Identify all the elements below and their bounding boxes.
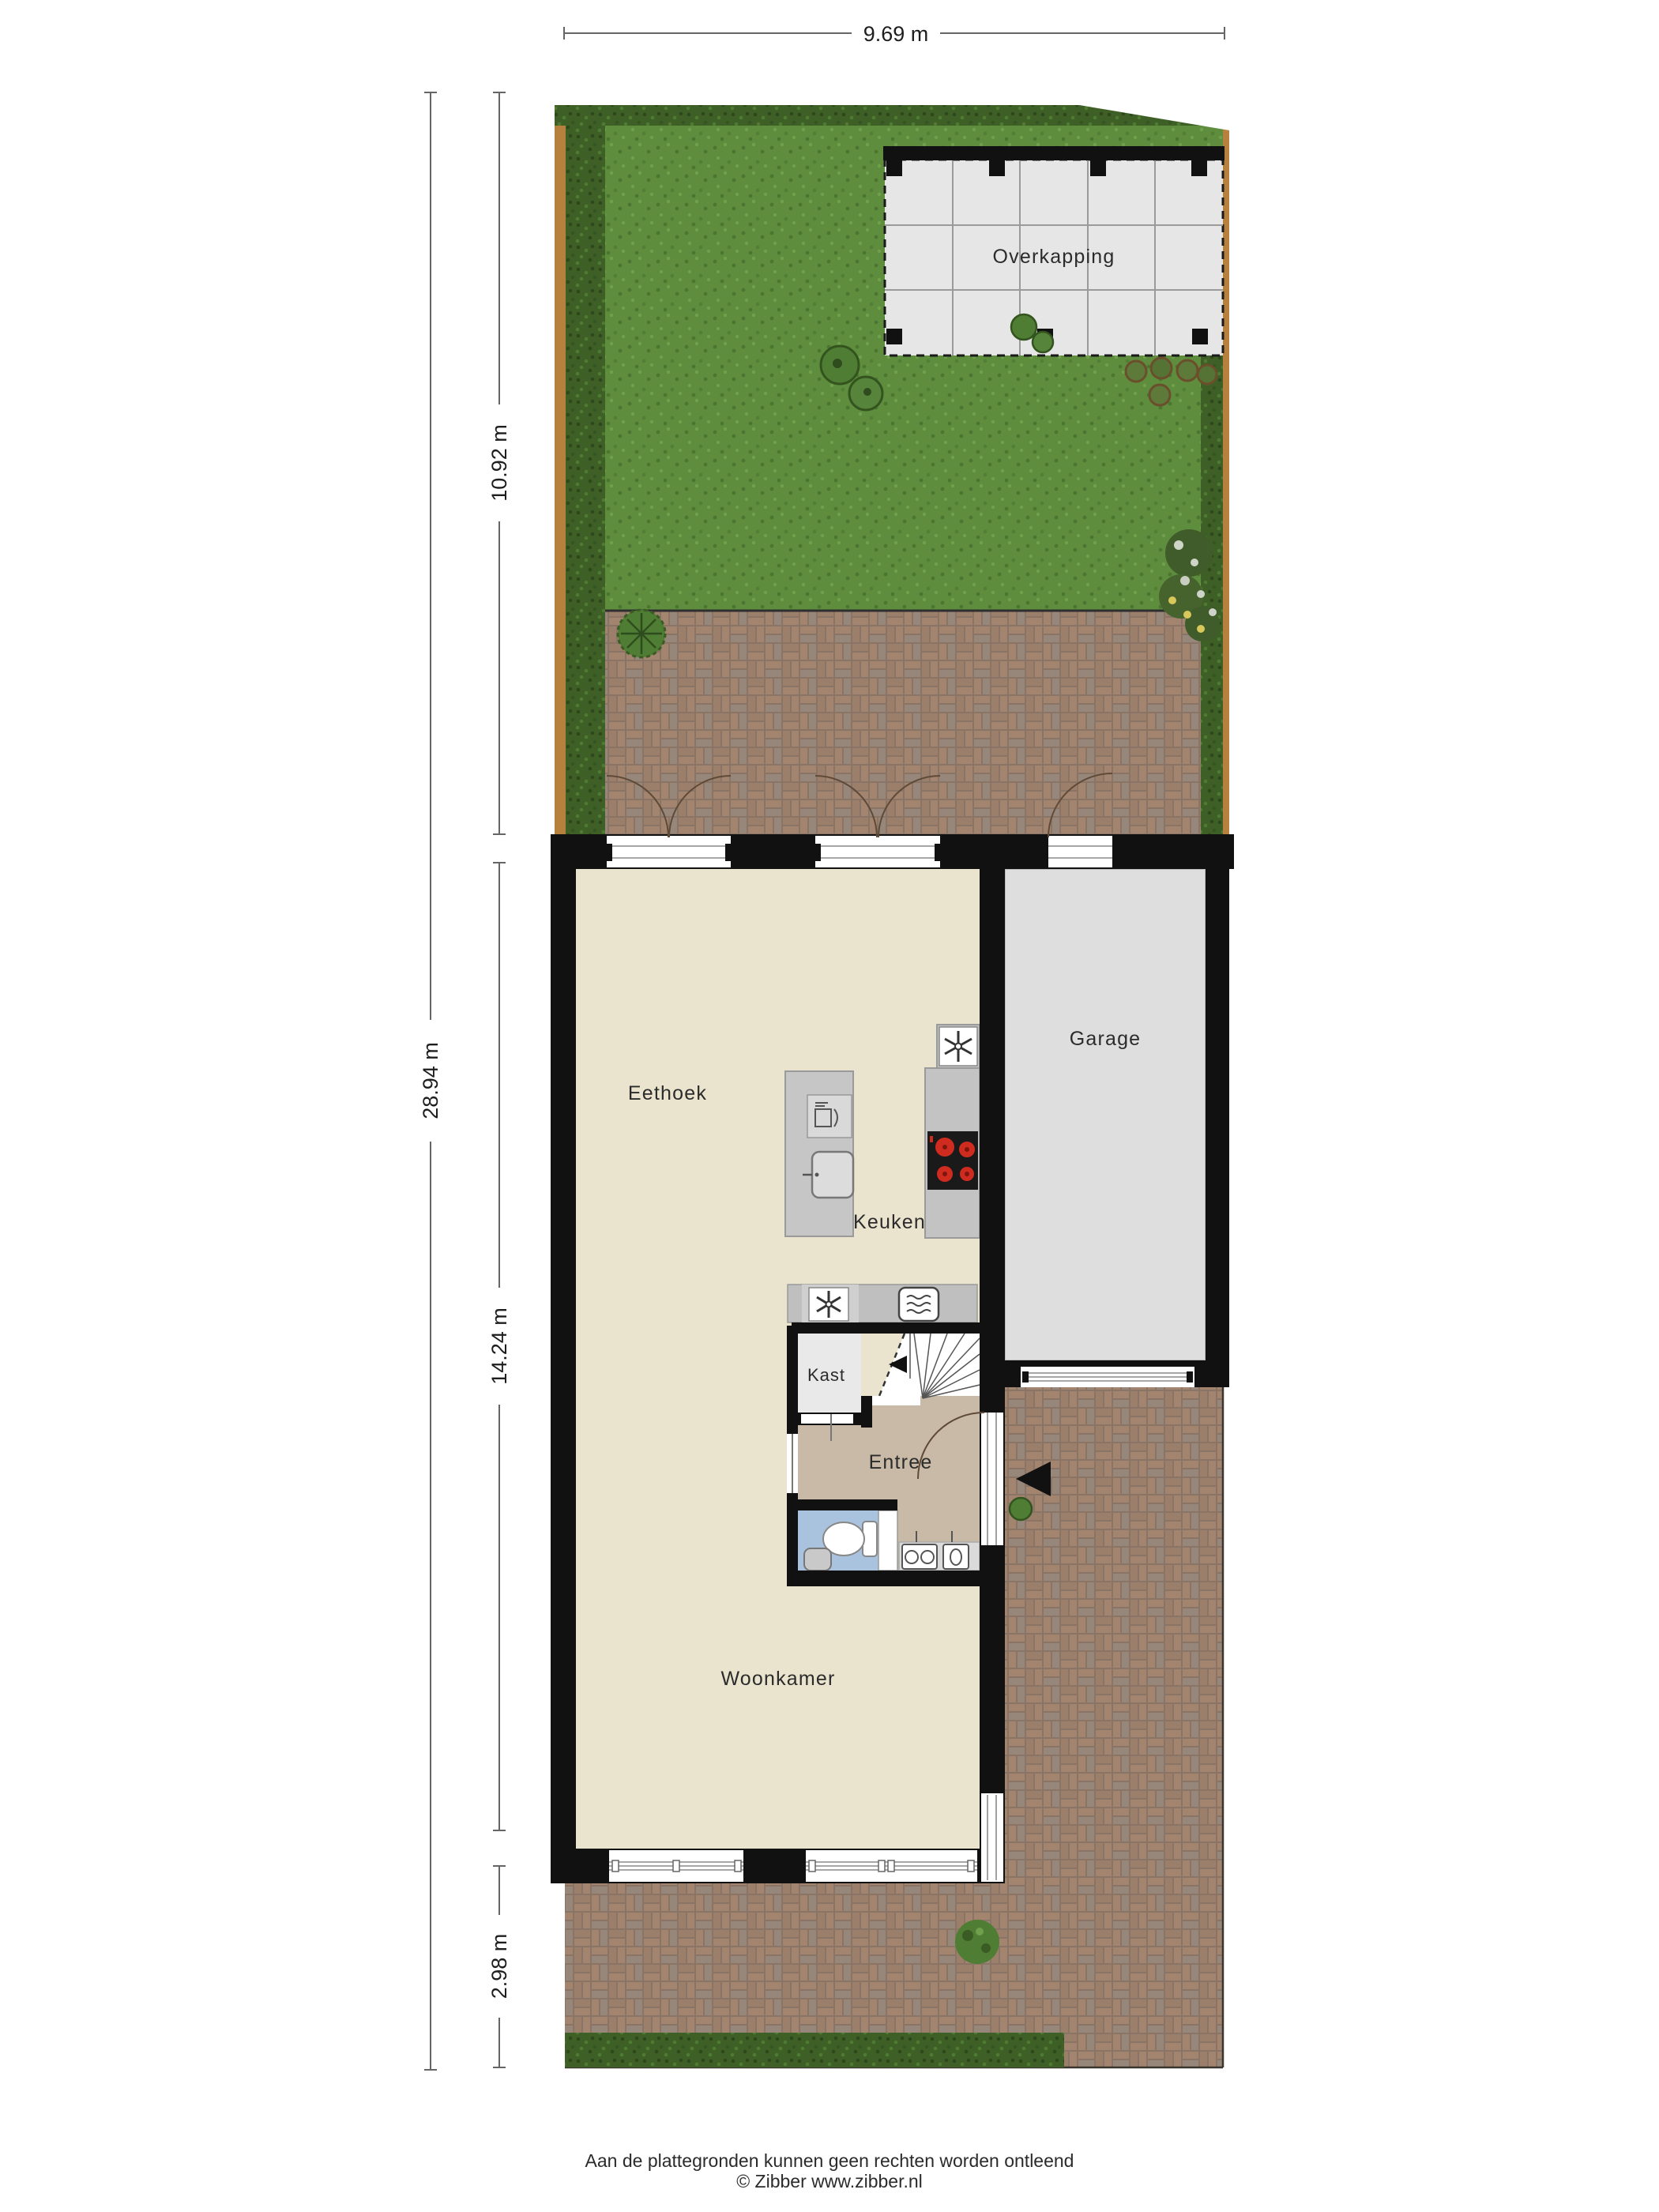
dim-plot-width: 9.69 m <box>863 22 929 46</box>
side-path <box>1005 1387 1223 1883</box>
dim-plot-height: 28.94 m <box>419 1042 442 1119</box>
hedge-front <box>565 2033 1064 2067</box>
wall-toilet-top <box>787 1499 897 1510</box>
front-yard-bush <box>955 1920 999 1964</box>
toilet-icon <box>823 1522 877 1556</box>
rear-counter <box>788 1285 977 1322</box>
floor-plan-drawing: 9.69 m 28.94 m 10.92 m 14.24 m 2.98 m <box>0 0 1659 2212</box>
wall-left <box>551 834 576 1883</box>
patio-terrace <box>605 610 1223 834</box>
wall-counter <box>792 1322 980 1334</box>
hedge-left <box>566 105 605 834</box>
garden: Overkapping <box>555 87 1234 834</box>
fence-left <box>555 105 566 834</box>
kitchen-island <box>785 1071 853 1236</box>
dishwasher-icon <box>807 1095 852 1138</box>
washing-machine-icon <box>902 1544 937 1569</box>
extractor-fan-icon-2 <box>809 1288 848 1321</box>
footer-copyright: © Zibber www.zibber.nl <box>736 2171 923 2191</box>
dim-house-depth: 14.24 m <box>487 1307 511 1385</box>
wall-pier <box>861 1396 872 1428</box>
garage-door <box>1021 1367 1194 1387</box>
keuken-label: Keuken <box>853 1211 926 1233</box>
front-sidelight-window <box>981 1479 1003 1545</box>
kast-label: Kast <box>807 1365 845 1385</box>
entrance-bush <box>1010 1498 1032 1520</box>
footer: Aan de plattegronden kunnen geen rechten… <box>585 2150 1074 2191</box>
garage-label: Garage <box>1070 1028 1142 1050</box>
overkapping-canopy: Overkapping <box>883 146 1224 355</box>
overkapping-beam <box>883 146 1224 160</box>
side-window <box>981 1793 1003 1882</box>
overkapping-label: Overkapping <box>993 246 1115 268</box>
eethoek-label: Eethoek <box>628 1082 707 1104</box>
front-window-1 <box>609 1850 743 1882</box>
cooktop-icon <box>927 1131 978 1190</box>
wall-right-living <box>980 834 1005 1883</box>
patio-tree <box>618 610 665 657</box>
kast-door-opening <box>801 1414 853 1424</box>
wall-toilet-bottom <box>787 1571 989 1586</box>
wall-garage-right <box>1206 834 1229 1387</box>
dryer-icon <box>943 1544 969 1569</box>
woonkamer-label: Woonkamer <box>720 1668 835 1690</box>
dim-front-yard-depth: 2.98 m <box>487 1934 511 1999</box>
entree-label: Entree <box>869 1451 933 1473</box>
front-window-2 <box>806 1850 977 1882</box>
dim-garden-depth: 10.92 m <box>487 424 511 502</box>
extractor-fan-icon <box>939 1027 977 1066</box>
floor-plan-page: 9.69 m 28.94 m 10.92 m 14.24 m 2.98 m <box>0 0 1659 2212</box>
toilet-room <box>798 1510 897 1577</box>
garage-floor <box>1005 869 1206 1360</box>
toilet-door <box>878 1510 897 1571</box>
microwave-icon <box>899 1288 939 1321</box>
footer-disclaimer: Aan de plattegronden kunnen geen rechten… <box>585 2150 1074 2171</box>
